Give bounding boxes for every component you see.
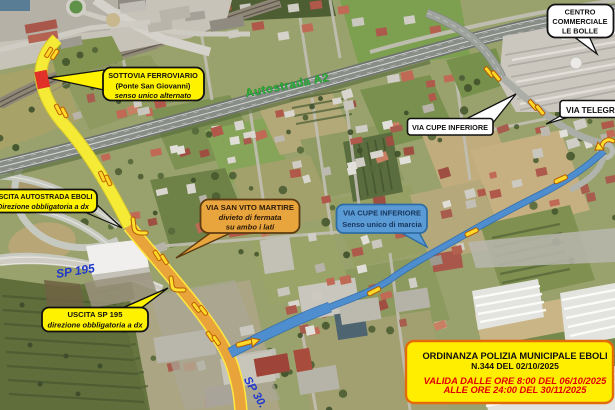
svg-text:VIA TELEGRAFO: VIA TELEGRAFO	[566, 106, 615, 115]
svg-text:Senso unico di marcia: Senso unico di marcia	[342, 220, 422, 229]
svg-text:USCITA SP 195: USCITA SP 195	[68, 310, 124, 319]
svg-text:VIA SAN VITO MARTIRE: VIA SAN VITO MARTIRE	[206, 203, 294, 212]
svg-text:COMMERCIALE: COMMERCIALE	[552, 17, 607, 26]
svg-text:USCITA AUTOSTRADA EBOLI: USCITA AUTOSTRADA EBOLI	[0, 194, 93, 201]
svg-text:Direzione obbligatoria a dx: Direzione obbligatoria a dx	[0, 202, 90, 211]
svg-text:N.344 DEL 02/10/2025: N.344 DEL 02/10/2025	[471, 361, 559, 371]
svg-text:ALLE ORE 24:00 DEL 30/11/2025: ALLE ORE 24:00 DEL 30/11/2025	[443, 385, 588, 395]
svg-text:CENTRO: CENTRO	[565, 8, 596, 17]
svg-text:VIA CUPE INFERIORE: VIA CUPE INFERIORE	[343, 209, 421, 218]
svg-text:ORDINANZA POLIZIA MUNICIPALE E: ORDINANZA POLIZIA MUNICIPALE EBOLI	[422, 351, 607, 361]
svg-text:VIA CUPE INFERIORE: VIA CUPE INFERIORE	[412, 123, 488, 132]
svg-text:senso unico alternato: senso unico alternato	[115, 91, 192, 100]
svg-text:direzione obbligatoria a dx: direzione obbligatoria a dx	[47, 321, 143, 330]
svg-text:su ambo i lati: su ambo i lati	[226, 223, 275, 232]
svg-text:SOTTOVIA FERROVIARIO: SOTTOVIA FERROVIARIO	[108, 71, 198, 80]
svg-text:(Ponte San Giovanni): (Ponte San Giovanni)	[116, 82, 191, 91]
svg-text:divieto di fermata: divieto di fermata	[219, 213, 282, 222]
svg-text:LE BOLLE: LE BOLLE	[562, 27, 598, 36]
